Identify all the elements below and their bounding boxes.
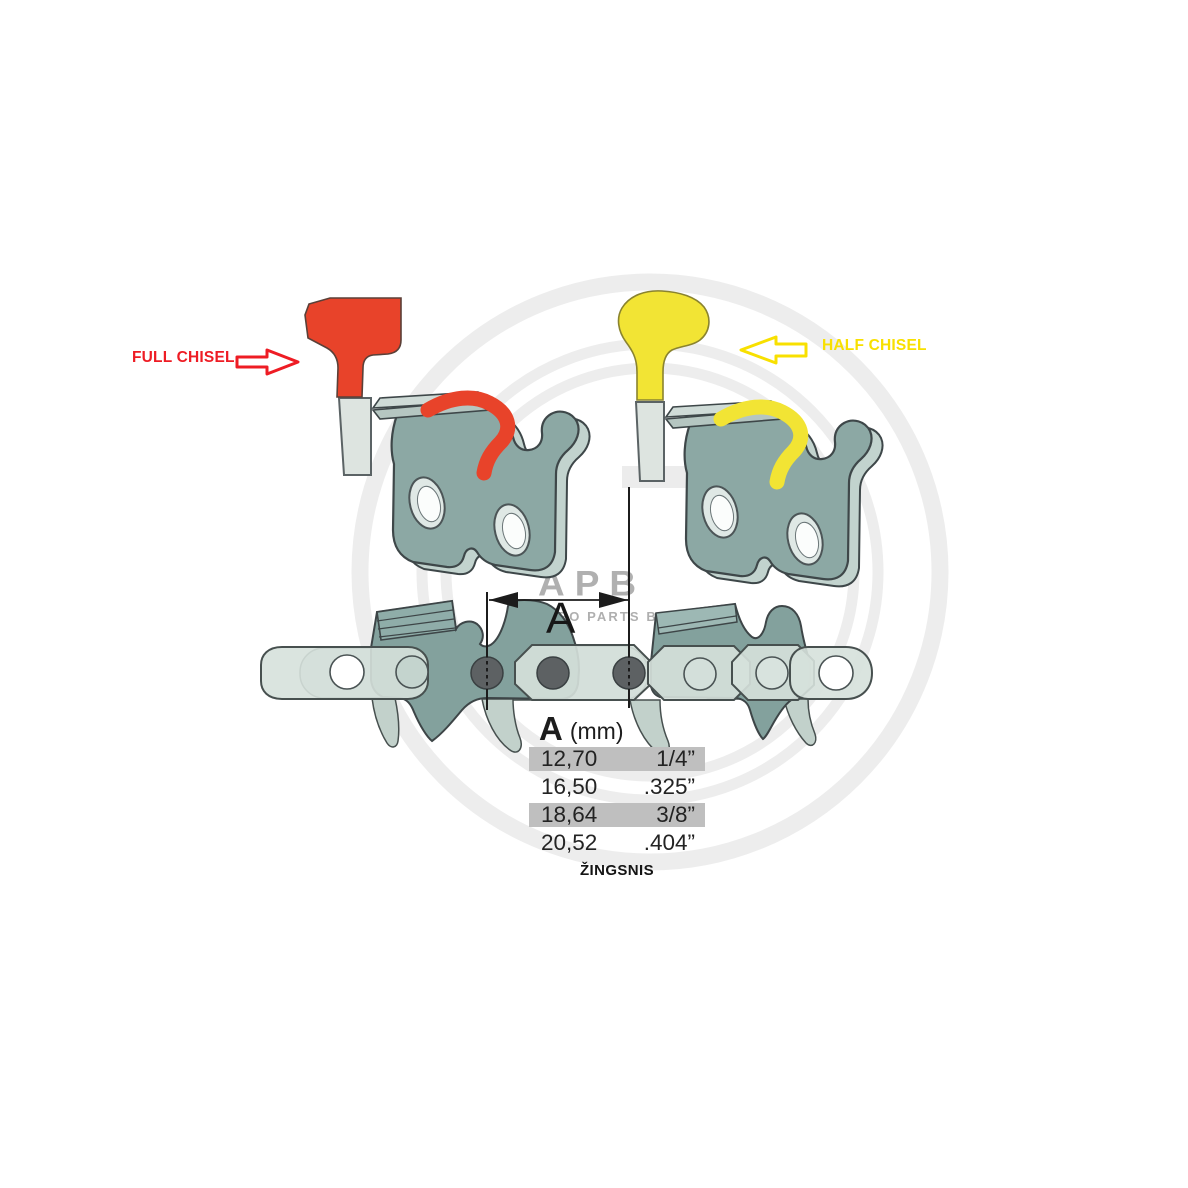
pitch-inch-value: 1/4” <box>656 748 695 771</box>
pitch-caption: ŽINGSNIS <box>529 862 705 879</box>
full-chisel-profile <box>305 298 401 475</box>
pitch-inch-value: 3/8” <box>656 804 695 827</box>
pitch-inch-value: .404” <box>644 832 695 855</box>
pitch-table-row: 18,64 3/8” <box>529 803 705 827</box>
dimension-label: A <box>546 597 575 641</box>
chainsaw-chain-diagram: APB AGRO PARTS BALTIJA <box>0 0 1188 1188</box>
full-chisel-cutter-link <box>373 392 590 577</box>
pitch-inch-value: .325” <box>644 776 695 799</box>
pitch-mm-value: 16,50 <box>541 776 597 799</box>
illustration <box>0 0 1188 1188</box>
pitch-mm-value: 20,52 <box>541 832 597 855</box>
pitch-mm-value: 18,64 <box>541 804 597 827</box>
full-chisel-label: FULL CHISEL <box>132 349 235 367</box>
pitch-table: A (mm) 12,70 1/4” 16,50 .325” 18,64 3/8”… <box>529 706 705 859</box>
half-chisel-profile-foot <box>636 402 664 481</box>
pitch-table-header-symbol: A <box>539 713 563 744</box>
rivets <box>471 657 645 689</box>
pitch-table-row: 16,50 .325” <box>529 775 705 799</box>
half-chisel-cutter-link <box>666 401 883 586</box>
pitch-table-row: 12,70 1/4” <box>529 747 705 771</box>
pitch-mm-value: 12,70 <box>541 748 597 771</box>
pitch-table-header-unit: (mm) <box>570 719 624 744</box>
half-chisel-label: HALF CHISEL <box>822 337 927 355</box>
full-chisel-profile-foot <box>339 398 371 475</box>
full-chisel-arrow-icon <box>237 350 298 374</box>
dimension-arrowhead-right-icon <box>599 592 628 608</box>
half-chisel-arrow-icon <box>741 337 806 363</box>
dimension-arrowhead-left-icon <box>489 592 518 608</box>
pitch-table-row: 20,52 .404” <box>529 831 705 855</box>
pitch-table-header: A (mm) <box>529 706 705 744</box>
